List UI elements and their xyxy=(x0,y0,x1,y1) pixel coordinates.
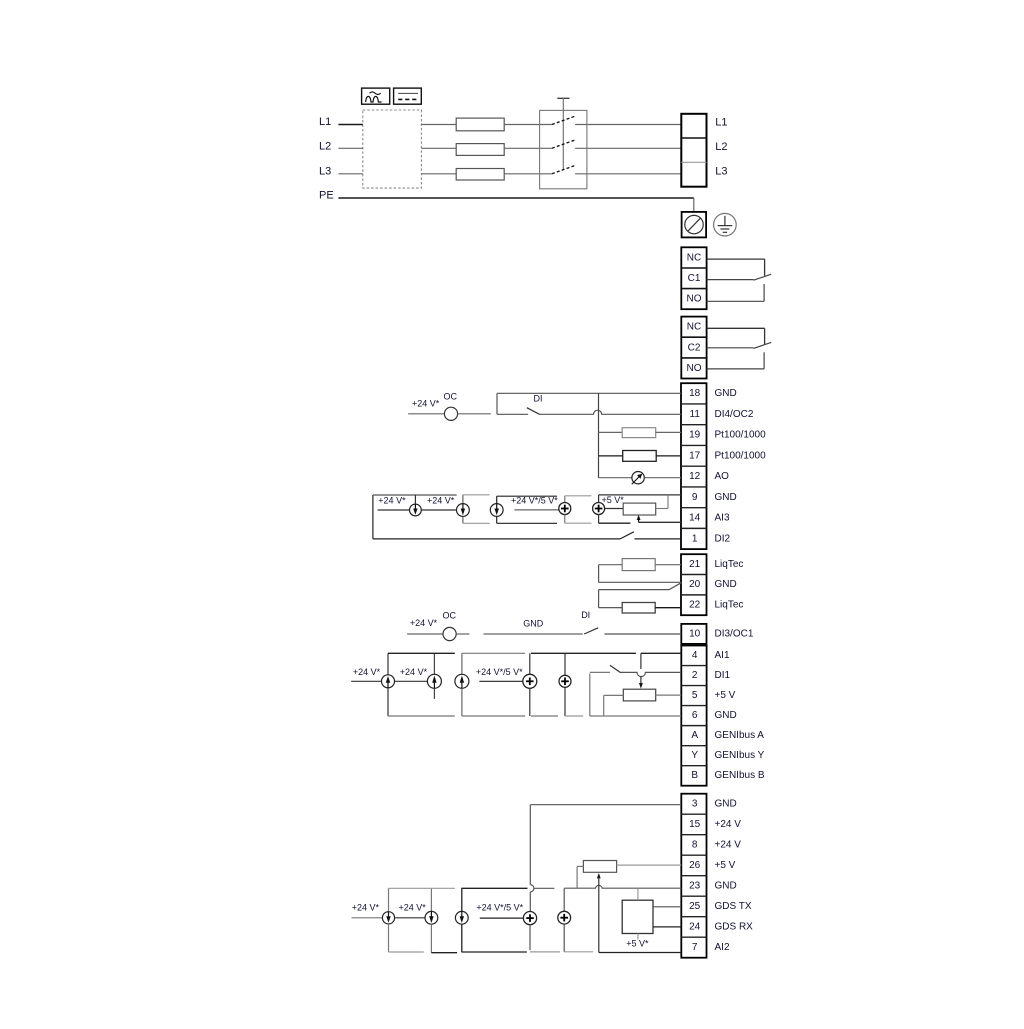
svg-text:+5 V*: +5 V* xyxy=(602,495,625,505)
svg-text:20: 20 xyxy=(689,579,701,590)
svg-text:AI1: AI1 xyxy=(715,650,730,661)
svg-text:DI3/OC1: DI3/OC1 xyxy=(715,628,754,639)
svg-text:NC: NC xyxy=(687,322,701,333)
svg-text:+24 V*/5 V*: +24 V*/5 V* xyxy=(511,495,558,505)
svg-text:10: 10 xyxy=(689,628,701,639)
svg-text:+5 V*: +5 V* xyxy=(626,938,649,948)
svg-text:NO: NO xyxy=(687,363,702,374)
svg-text:+24 V*: +24 V* xyxy=(352,902,380,912)
svg-text:AO: AO xyxy=(715,471,730,482)
svg-text:+24 V*: +24 V* xyxy=(353,667,381,677)
svg-text:GND: GND xyxy=(715,880,737,891)
svg-text:GND: GND xyxy=(715,798,737,809)
svg-text:GND: GND xyxy=(715,388,737,399)
svg-text:L2: L2 xyxy=(715,141,727,153)
svg-text:Y: Y xyxy=(691,750,698,761)
svg-text:5: 5 xyxy=(692,690,698,701)
svg-text:+24 V*: +24 V* xyxy=(427,496,455,506)
svg-text:6: 6 xyxy=(692,710,698,721)
svg-text:+24 V*: +24 V* xyxy=(400,667,428,677)
svg-text:+24 V*/5 V*: +24 V*/5 V* xyxy=(476,902,523,912)
svg-text:L3: L3 xyxy=(319,165,331,177)
svg-text:+24 V: +24 V xyxy=(715,819,742,830)
svg-text:+24 V: +24 V xyxy=(715,839,742,850)
svg-text:LiqTec: LiqTec xyxy=(715,559,744,570)
svg-text:+24 V*/5 V*: +24 V*/5 V* xyxy=(476,667,523,677)
svg-text:LiqTec: LiqTec xyxy=(715,600,744,611)
svg-text:GND: GND xyxy=(523,618,544,628)
svg-text:23: 23 xyxy=(689,880,701,891)
svg-text:OC: OC xyxy=(443,610,457,620)
svg-text:A: A xyxy=(691,730,698,741)
svg-text:4: 4 xyxy=(692,650,698,661)
svg-text:C1: C1 xyxy=(688,273,701,284)
svg-text:Pt100/1000: Pt100/1000 xyxy=(715,450,767,461)
svg-text:PE: PE xyxy=(319,190,334,202)
svg-text:+24 V*: +24 V* xyxy=(412,399,440,409)
svg-text:GDS RX: GDS RX xyxy=(715,921,754,932)
svg-text:GENIbus Y: GENIbus Y xyxy=(715,750,765,761)
svg-text:15: 15 xyxy=(689,819,701,830)
svg-text:2: 2 xyxy=(692,670,698,681)
svg-text:NC: NC xyxy=(687,253,701,264)
svg-text:OC: OC xyxy=(444,392,458,402)
svg-text:L1: L1 xyxy=(319,116,331,128)
svg-text:DI: DI xyxy=(581,610,590,620)
svg-text:DI: DI xyxy=(534,394,543,404)
svg-text:25: 25 xyxy=(689,901,701,912)
svg-text:8: 8 xyxy=(692,839,698,850)
svg-text:GENIbus A: GENIbus A xyxy=(715,730,765,741)
svg-text:+5 V: +5 V xyxy=(715,860,736,871)
svg-text:19: 19 xyxy=(689,430,701,441)
svg-text:24: 24 xyxy=(689,921,701,932)
svg-text:17: 17 xyxy=(689,450,701,461)
svg-text:DI1: DI1 xyxy=(715,670,731,681)
svg-text:GND: GND xyxy=(715,579,737,590)
svg-text:DI2: DI2 xyxy=(715,533,731,544)
svg-text:7: 7 xyxy=(692,942,698,953)
svg-text:AI3: AI3 xyxy=(715,513,730,524)
svg-text:C2: C2 xyxy=(688,342,701,353)
svg-text:AI2: AI2 xyxy=(715,942,730,953)
svg-text:+24 V*: +24 V* xyxy=(399,902,427,912)
svg-text:11: 11 xyxy=(690,409,701,420)
svg-text:18: 18 xyxy=(689,388,701,399)
svg-text:3: 3 xyxy=(692,798,698,809)
svg-text:+24 V*: +24 V* xyxy=(378,496,406,506)
svg-text:26: 26 xyxy=(689,860,701,871)
svg-text:NO: NO xyxy=(687,294,702,305)
svg-text:+5 V: +5 V xyxy=(715,690,736,701)
svg-text:DI4/OC2: DI4/OC2 xyxy=(715,409,754,420)
svg-text:L3: L3 xyxy=(715,165,727,177)
svg-text:GENIbus B: GENIbus B xyxy=(715,770,765,781)
svg-text:GND: GND xyxy=(715,710,737,721)
svg-text:Pt100/1000: Pt100/1000 xyxy=(715,430,767,441)
svg-text:21: 21 xyxy=(689,559,701,570)
svg-text:12: 12 xyxy=(689,471,701,482)
svg-text:L1: L1 xyxy=(715,116,727,128)
svg-text:B: B xyxy=(691,770,698,781)
svg-text:14: 14 xyxy=(689,513,701,524)
svg-text:9: 9 xyxy=(692,492,698,503)
svg-text:GND: GND xyxy=(715,492,737,503)
svg-text:GDS TX: GDS TX xyxy=(715,901,752,912)
svg-text:L2: L2 xyxy=(319,141,331,153)
svg-text:+24 V*: +24 V* xyxy=(410,618,438,628)
svg-text:1: 1 xyxy=(692,533,698,544)
svg-text:22: 22 xyxy=(689,600,701,611)
